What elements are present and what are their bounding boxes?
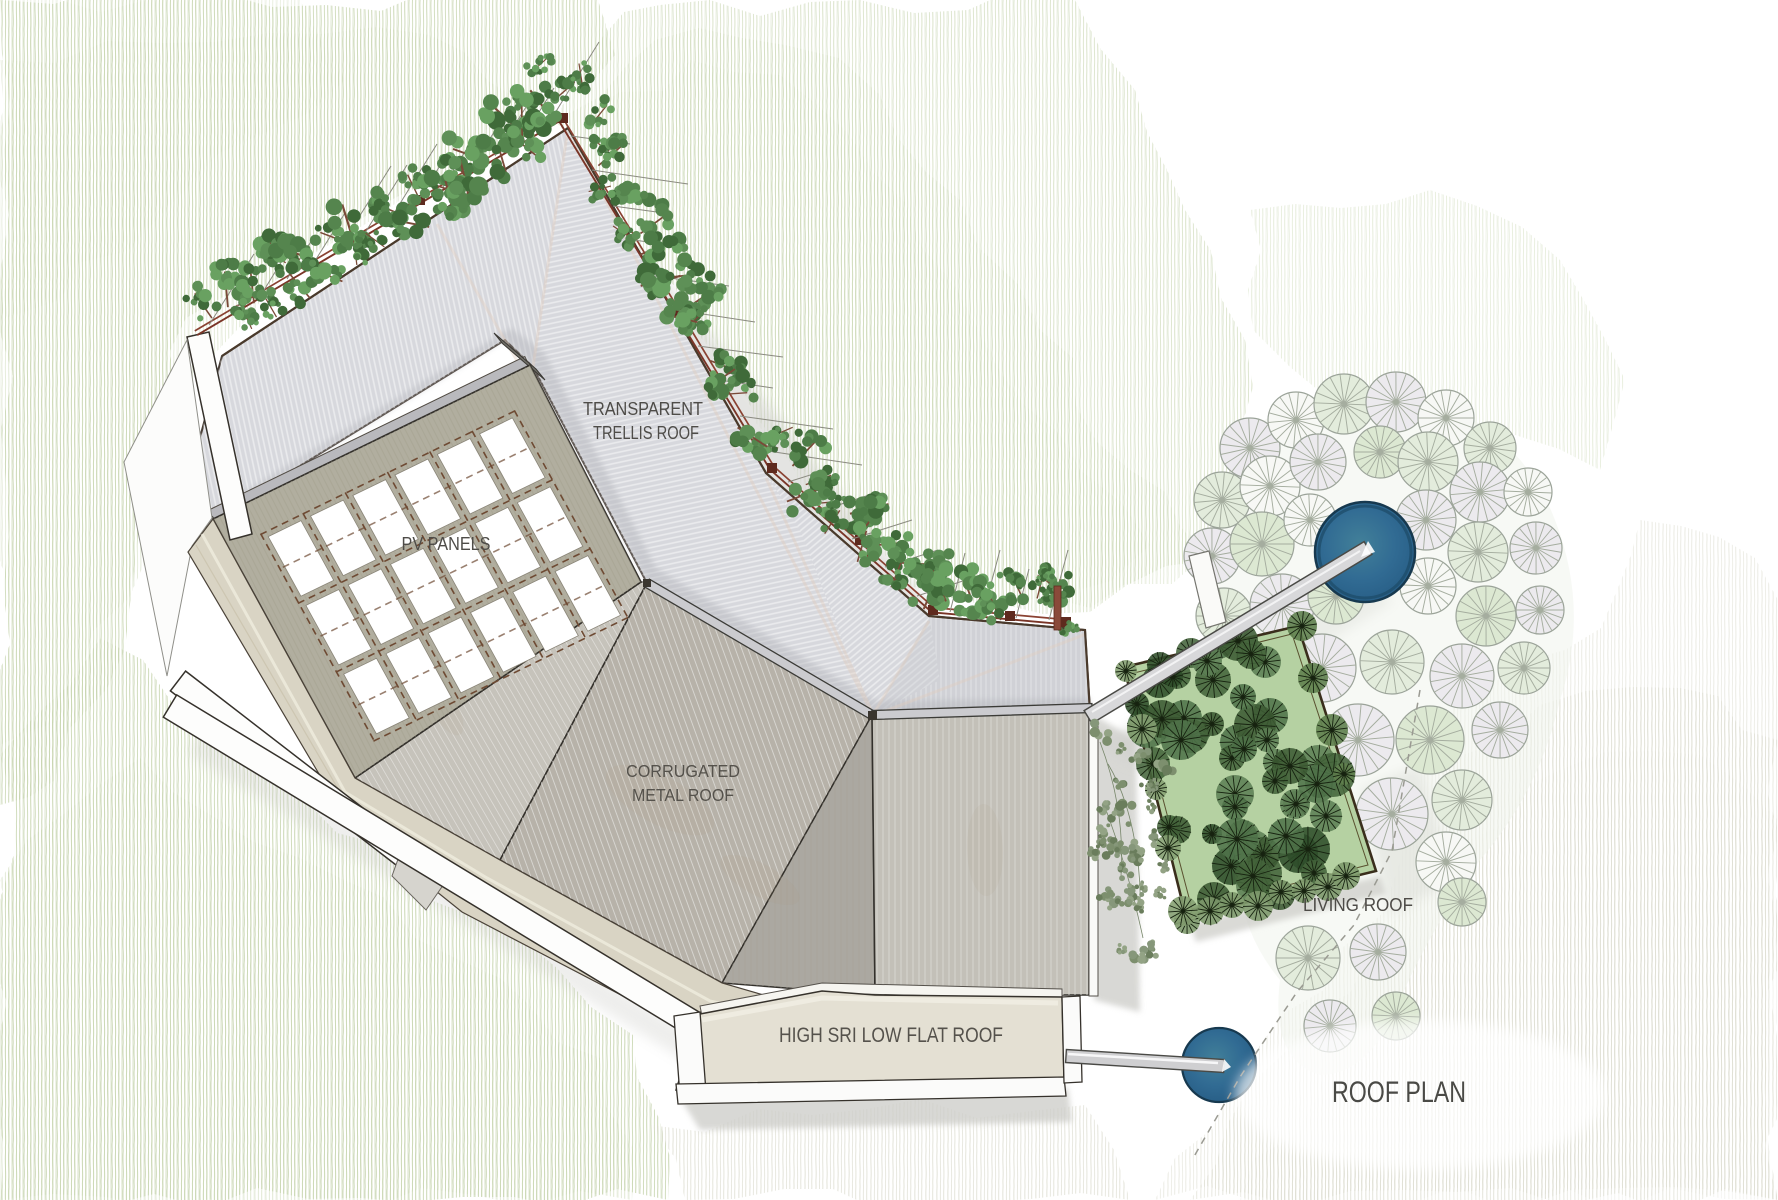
svg-text:TRELLIS ROOF: TRELLIS ROOF: [593, 422, 699, 443]
svg-text:HIGH SRI LOW FLAT ROOF: HIGH SRI LOW FLAT ROOF: [779, 1024, 1003, 1047]
svg-text:ROOF PLAN: ROOF PLAN: [1332, 1076, 1466, 1109]
svg-text:LIVING ROOF: LIVING ROOF: [1303, 894, 1413, 915]
svg-text:METAL ROOF: METAL ROOF: [632, 785, 734, 805]
svg-text:CORRUGATED: CORRUGATED: [626, 761, 740, 781]
svg-text:TRANSPARENT: TRANSPARENT: [583, 398, 703, 419]
svg-text:PV PANELS: PV PANELS: [402, 533, 491, 554]
